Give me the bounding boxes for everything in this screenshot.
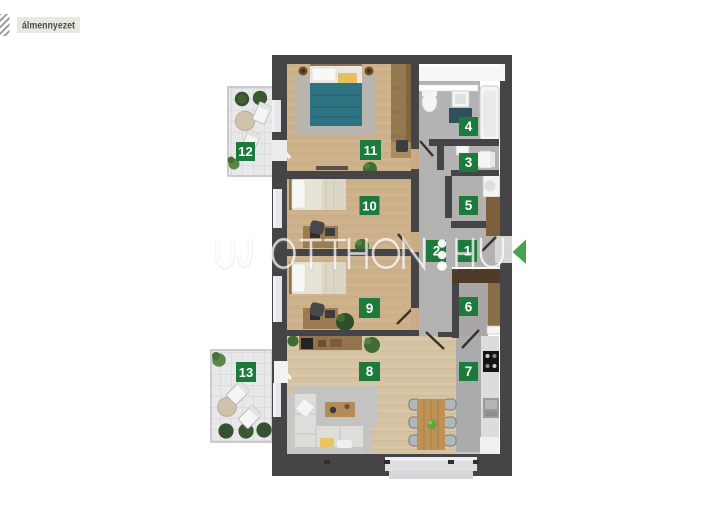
svg-text:5: 5 (465, 198, 473, 213)
svg-text:6: 6 (465, 300, 473, 315)
svg-text:8: 8 (366, 364, 374, 379)
svg-text:11: 11 (364, 143, 378, 158)
svg-text:7: 7 (465, 364, 473, 379)
svg-text:12: 12 (238, 144, 252, 159)
svg-text:3: 3 (465, 155, 473, 170)
svg-text:1: 1 (464, 244, 472, 259)
svg-text:álmennyezet: álmennyezet (22, 21, 76, 32)
svg-text:4: 4 (465, 119, 473, 134)
svg-text:9: 9 (366, 301, 374, 316)
svg-text:10: 10 (362, 199, 376, 214)
svg-text:13: 13 (239, 365, 253, 380)
